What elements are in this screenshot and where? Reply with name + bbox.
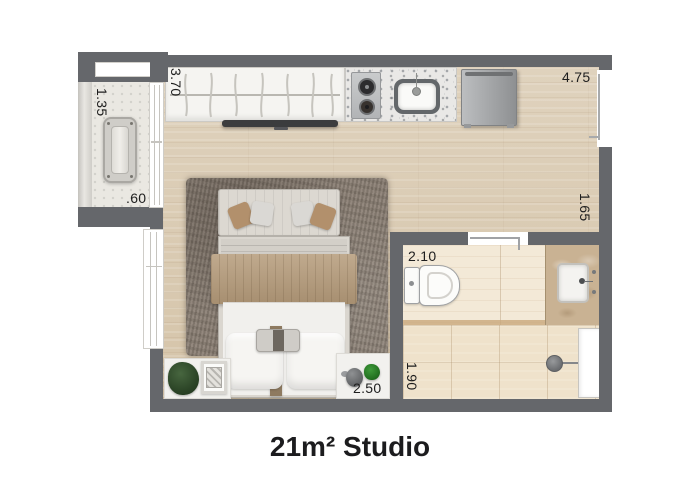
balcony-parapet <box>78 82 92 207</box>
shower-drain <box>546 355 563 372</box>
tv-stand <box>274 127 288 130</box>
faucet-spout <box>584 281 593 282</box>
right-wall-lower <box>599 147 612 412</box>
dimension-balcony-width: 1.35 <box>95 88 109 116</box>
entry-door-handle <box>589 136 600 138</box>
top-wall <box>160 55 612 67</box>
cooktop <box>351 72 381 119</box>
dimension-wardrobe-wall: 3.70 <box>169 68 183 96</box>
fridge-handle <box>465 72 513 76</box>
faucet-hose <box>416 73 417 88</box>
bathroom-wall-top-left <box>390 232 468 245</box>
ac-screw <box>107 175 110 178</box>
plant <box>364 364 380 380</box>
wardrobe <box>165 67 345 122</box>
dimension-balcony-depth: .60 <box>126 191 146 205</box>
dimension-bathroom-depth: 1.90 <box>405 362 419 390</box>
bed-accent-cushion <box>256 329 300 352</box>
bottom-wall <box>150 399 612 412</box>
bathroom-wall-left <box>390 232 403 399</box>
bathroom-wall-top-right <box>528 232 612 245</box>
bathroom-window <box>578 328 600 398</box>
plan-title: 21m² Studio <box>0 431 700 463</box>
balcony-window <box>95 62 152 77</box>
dimension-foot-wall: 2.50 <box>353 381 381 395</box>
bed-footboard <box>221 239 347 255</box>
bathroom-door-handle <box>518 239 520 250</box>
toilet-seat <box>427 272 453 299</box>
dimension-bathroom-width: 2.10 <box>408 249 436 263</box>
kitchen-sink <box>394 79 440 114</box>
ac-unit <box>103 117 137 183</box>
dimension-top-wall: 4.75 <box>562 70 590 84</box>
floor-plan-image: 3.70 1.35 .60 4.75 1.65 2.10 1.90 2.50 2… <box>0 0 700 500</box>
toilet-bowl <box>419 265 460 306</box>
toilet <box>404 265 460 306</box>
toilet-flush-button <box>409 281 414 286</box>
bathroom-vanity <box>545 245 599 325</box>
fridge-foot <box>507 124 514 128</box>
bench-cushion <box>249 200 274 226</box>
tap-handle <box>592 270 596 274</box>
ac-unit-grille <box>111 126 129 174</box>
tap-handle <box>592 290 596 294</box>
refrigerator <box>461 69 517 126</box>
balcony-glass-door <box>149 82 164 208</box>
entry-door-leaf <box>598 74 600 140</box>
decor-frame <box>201 361 227 394</box>
dimension-entry-wall: 1.65 <box>578 193 592 221</box>
left-wall-lower <box>150 347 163 412</box>
ac-screw <box>107 122 110 125</box>
burner-cap <box>365 105 369 109</box>
ac-screw <box>130 122 133 125</box>
wardrobe-hangers <box>166 68 344 121</box>
decor-frame-art <box>206 367 222 388</box>
plant <box>168 362 199 395</box>
bed-throw-blanket <box>211 254 357 304</box>
ac-screw <box>130 175 133 178</box>
fridge-foot <box>464 124 471 128</box>
bathroom-door-leaf <box>470 237 520 239</box>
faucet-icon <box>412 87 421 96</box>
left-window <box>143 229 164 349</box>
tv <box>222 120 338 127</box>
burner-cap <box>365 85 369 89</box>
accent-cushion-band <box>273 330 284 351</box>
